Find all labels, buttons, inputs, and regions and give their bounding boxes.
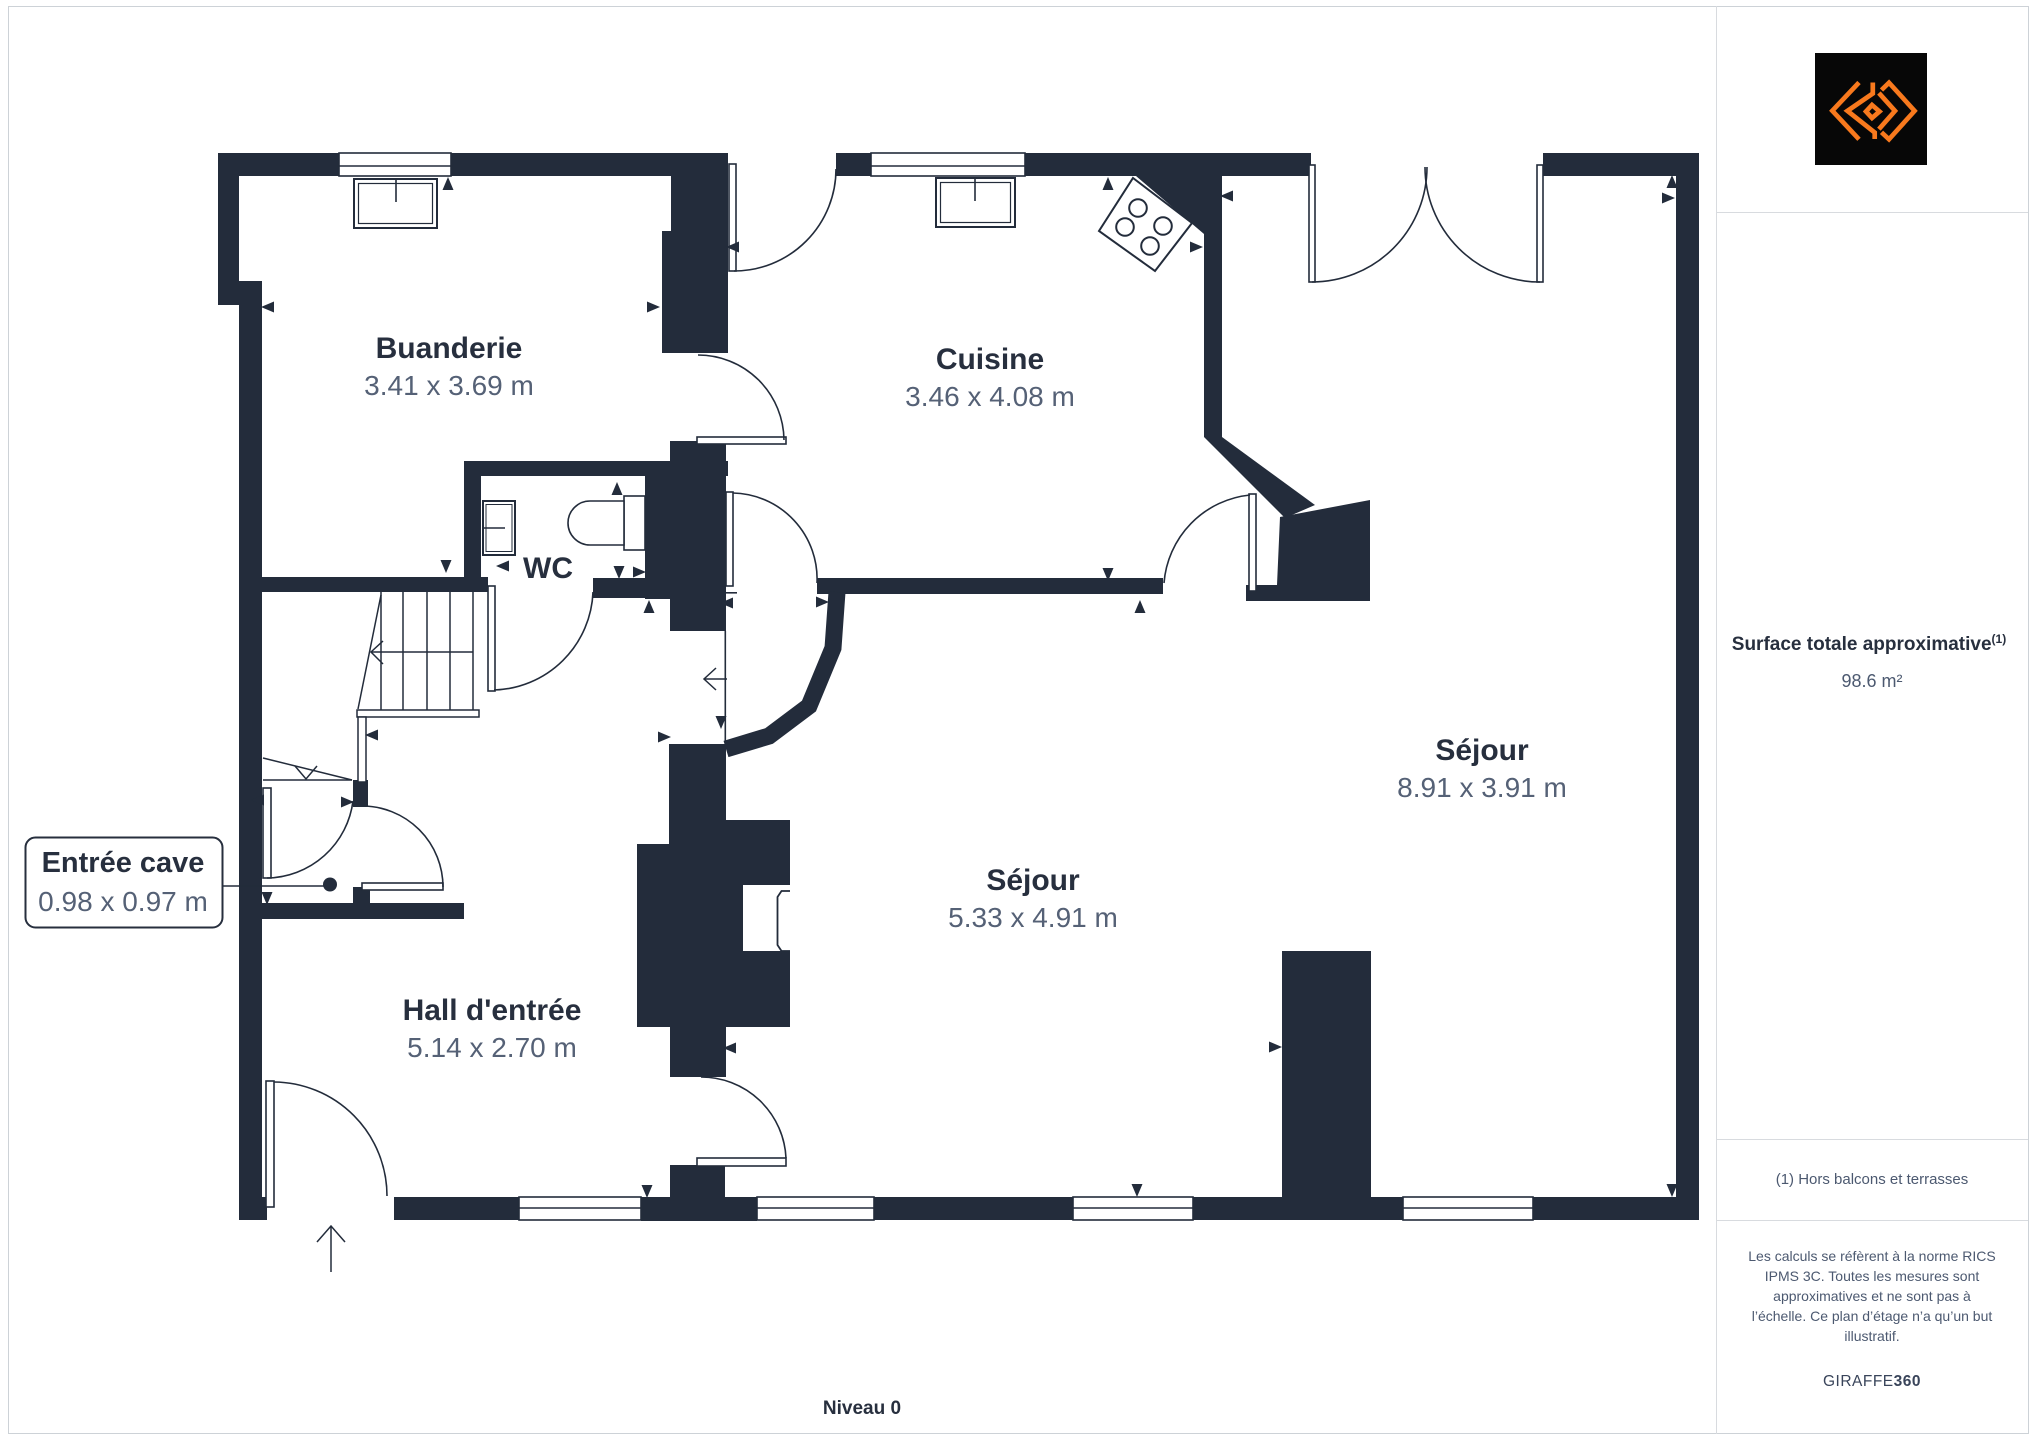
svg-text:IPMS 3C. Toutes les mesures so: IPMS 3C. Toutes les mesures sont [1765,1268,1980,1284]
svg-text:Entrée cave: Entrée cave [42,847,205,879]
svg-text:approximatives et ne sont pas: approximatives et ne sont pas à [1773,1288,1971,1304]
svg-text:98.6 m²: 98.6 m² [1841,671,1902,691]
svg-text:GIRAFFE360: GIRAFFE360 [1823,1373,1921,1390]
svg-text:l’échelle. Ce plan d’étage n’a: l’échelle. Ce plan d’étage n’a qu’un but [1752,1308,1993,1324]
svg-text:Cuisine: Cuisine [936,343,1044,376]
svg-text:0.98 x 0.97 m: 0.98 x 0.97 m [38,886,208,917]
svg-text:Séjour: Séjour [986,864,1080,897]
svg-text:5.14 x 2.70 m: 5.14 x 2.70 m [407,1032,577,1063]
svg-text:WC: WC [523,552,573,585]
svg-text:Buanderie: Buanderie [376,332,523,365]
svg-text:illustratif.: illustratif. [1844,1328,1899,1344]
svg-text:Surface totale approximative(1: Surface totale approximative(1) [1732,632,2006,655]
svg-text:(1) Hors balcons et terrasses: (1) Hors balcons et terrasses [1776,1171,1969,1188]
svg-text:Les calculs se réfèrent à la n: Les calculs se réfèrent à la norme RICS [1748,1248,1995,1264]
svg-text:Séjour: Séjour [1435,734,1529,767]
svg-text:Hall d'entrée: Hall d'entrée [403,994,582,1027]
svg-text:Niveau 0: Niveau 0 [823,1398,901,1419]
svg-text:3.41 x 3.69 m: 3.41 x 3.69 m [364,370,534,401]
svg-text:5.33 x 4.91 m: 5.33 x 4.91 m [948,902,1118,933]
svg-text:3.46 x 4.08 m: 3.46 x 4.08 m [905,381,1075,412]
svg-text:8.91 x 3.91 m: 8.91 x 3.91 m [1397,772,1567,803]
